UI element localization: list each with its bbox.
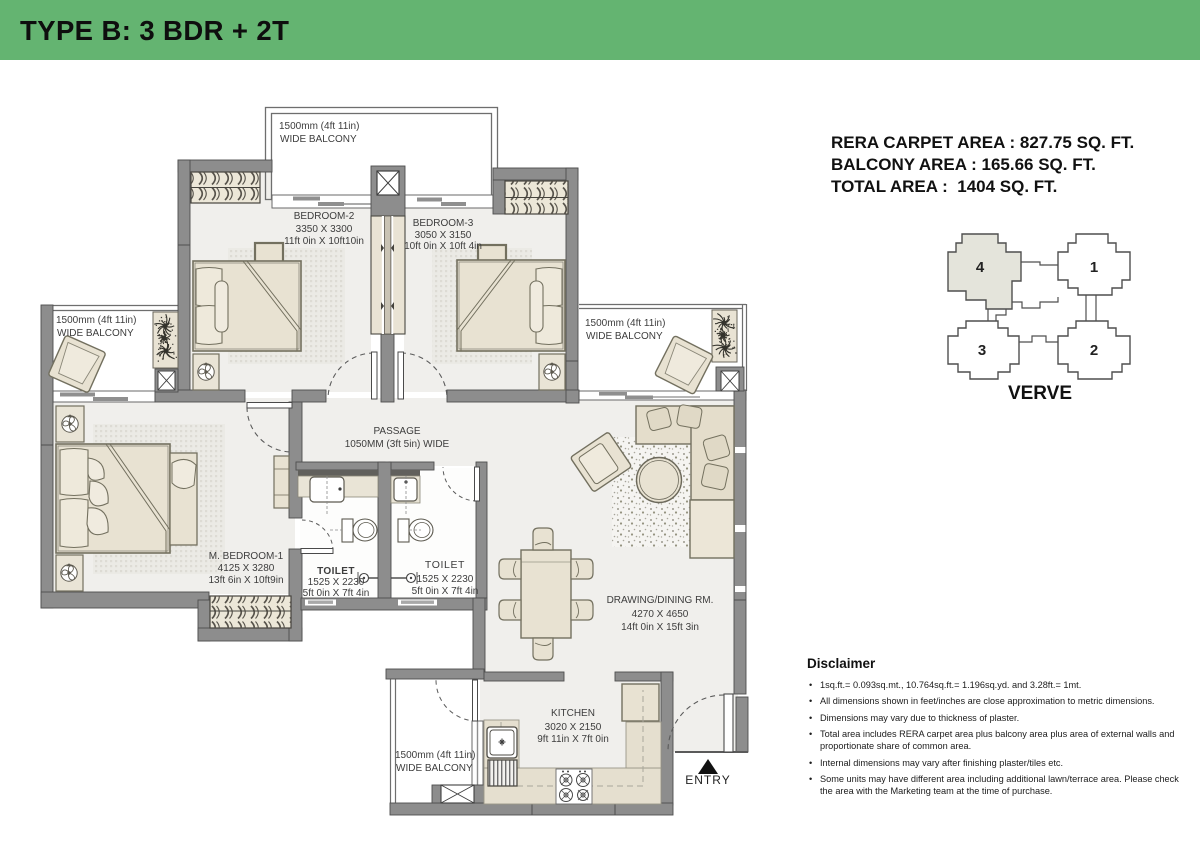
svg-text:1050MM (3ft 5in) WIDE: 1050MM (3ft 5in) WIDE: [345, 439, 450, 450]
svg-text:1500mm (4ft 11in): 1500mm (4ft 11in): [585, 318, 665, 329]
svg-text:5ft 0in X 7ft 4in: 5ft 0in X 7ft 4in: [303, 588, 370, 599]
svg-text:KITCHEN: KITCHEN: [551, 708, 595, 719]
svg-text:9ft 11in X 7ft 0in: 9ft 11in X 7ft 0in: [537, 734, 609, 745]
svg-text:2: 2: [1090, 342, 1098, 359]
svg-text:14ft 0in X 15ft 3in: 14ft 0in X 15ft 3in: [621, 622, 699, 633]
svg-text:1500mm (4ft 11in): 1500mm (4ft 11in): [56, 315, 136, 326]
svg-text:3350 X 3300: 3350 X 3300: [296, 224, 353, 235]
svg-text:BEDROOM-3: BEDROOM-3: [413, 218, 474, 229]
svg-text:10ft 0in X 10ft 4in: 10ft 0in X 10ft 4in: [404, 241, 482, 252]
svg-text:1500mm (4ft 11in): 1500mm (4ft 11in): [395, 750, 475, 761]
svg-text:1: 1: [1090, 259, 1098, 276]
svg-text:13ft 6in X 10ft9in: 13ft 6in X 10ft9in: [208, 575, 283, 586]
svg-text:WIDE BALCONY: WIDE BALCONY: [57, 328, 134, 339]
svg-text:TOILET: TOILET: [317, 566, 355, 577]
svg-text:4270 X 4650: 4270 X 4650: [632, 609, 689, 620]
svg-text:1525 X 2230: 1525 X 2230: [308, 577, 365, 588]
svg-text:3: 3: [978, 342, 986, 359]
svg-text:WIDE BALCONY: WIDE BALCONY: [280, 134, 357, 145]
svg-text:ENTRY: ENTRY: [685, 773, 730, 787]
svg-text:TOILET: TOILET: [425, 559, 465, 571]
svg-text:BEDROOM-2: BEDROOM-2: [294, 211, 355, 222]
svg-text:1525 X 2230: 1525 X 2230: [417, 574, 474, 585]
svg-text:4125 X 3280: 4125 X 3280: [218, 563, 275, 574]
svg-text:VERVE: VERVE: [1008, 383, 1072, 404]
svg-text:11ft 0in X 10ft10in: 11ft 0in X 10ft10in: [284, 236, 364, 247]
svg-text:WIDE BALCONY: WIDE BALCONY: [586, 331, 663, 342]
svg-text:3050 X 3150: 3050 X 3150: [415, 230, 472, 241]
svg-text:4: 4: [976, 259, 985, 276]
svg-text:5ft 0in X 7ft 4in: 5ft 0in X 7ft 4in: [412, 586, 479, 597]
svg-text:M. BEDROOM-1: M. BEDROOM-1: [209, 551, 284, 562]
svg-text:PASSAGE: PASSAGE: [373, 426, 420, 437]
svg-text:3020 X 2150: 3020 X 2150: [545, 722, 602, 733]
svg-text:WIDE BALCONY: WIDE BALCONY: [396, 763, 473, 774]
svg-text:1500mm (4ft 11in): 1500mm (4ft 11in): [279, 121, 359, 132]
svg-text:DRAWING/DINING RM.: DRAWING/DINING RM.: [607, 595, 714, 606]
